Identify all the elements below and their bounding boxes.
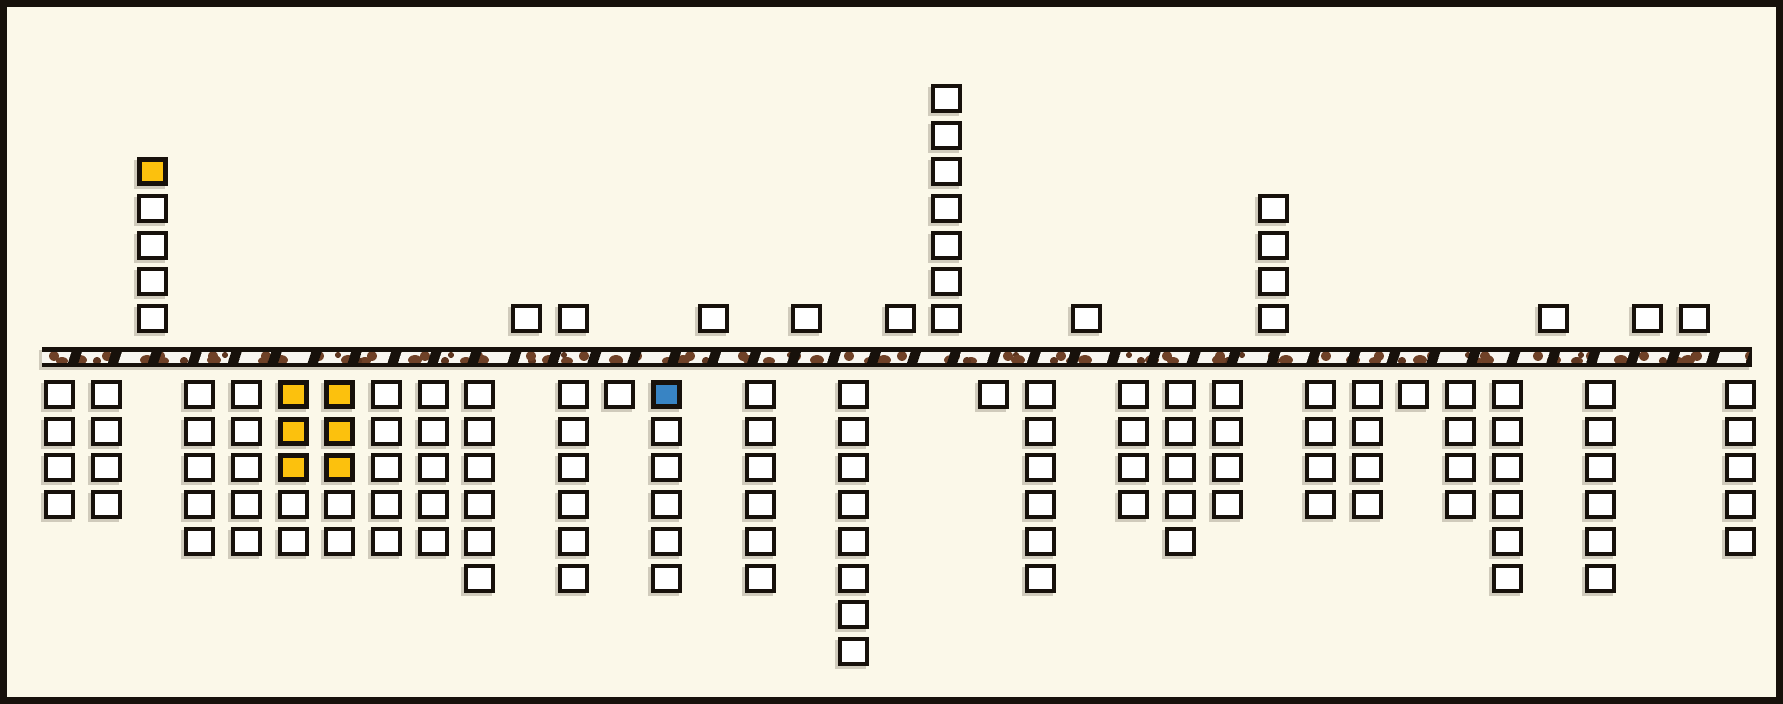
grid-cell [184,527,215,556]
grid-cell [324,453,355,482]
grid-cell [931,304,962,333]
grid-cell [418,380,449,409]
grid-cell [1258,267,1289,296]
grid-cell [464,564,495,593]
grid-cell [137,231,168,260]
grid-cell [44,453,75,482]
grid-cell [1492,527,1523,556]
grid-cell [1492,453,1523,482]
grid-cell [231,380,262,409]
simulation-canvas [0,0,1783,704]
grid-cell [698,304,729,333]
grid-cell [418,490,449,519]
grid-cell [1165,380,1196,409]
grid-cell [1398,380,1429,409]
grid-cell [1071,304,1102,333]
grid-cell [1118,380,1149,409]
grid-cell [1445,417,1476,446]
grid-cell [558,564,589,593]
grid-cell [418,453,449,482]
grid-cell [604,380,635,409]
grid-cell [931,231,962,260]
grid-cell [1025,527,1056,556]
grid-cell [1118,490,1149,519]
grid-cell [1352,380,1383,409]
grid-cell [371,490,402,519]
grid-cell [1585,380,1616,409]
grid-cell [324,380,355,409]
grid-cell [838,490,869,519]
grid-cell [1585,527,1616,556]
grid-cell [371,417,402,446]
grid-cell [464,453,495,482]
grid-cell [231,453,262,482]
grid-cell [1585,417,1616,446]
grid-cell [1445,453,1476,482]
grid-cell [1165,417,1196,446]
grid-cell [91,380,122,409]
grid-cell [44,417,75,446]
grid-cell [1352,453,1383,482]
grid-cell [1492,380,1523,409]
grid-cell [44,490,75,519]
grid-cell [931,157,962,186]
grid-cell [838,527,869,556]
grid-cell [1492,490,1523,519]
grid-cell [324,417,355,446]
grid-cell [278,490,309,519]
grid-cell [184,453,215,482]
soil-band [42,347,1752,367]
grid-cell [1258,231,1289,260]
grid-cell [91,453,122,482]
grid-cell [137,157,168,186]
grid-cell [1585,564,1616,593]
grid-cell [231,417,262,446]
grid-cell [1258,194,1289,223]
grid-cell [651,380,682,409]
grid-cell [324,490,355,519]
grid-cell [1212,417,1243,446]
grid-cell [838,453,869,482]
grid-cell [558,527,589,556]
grid-cell [137,267,168,296]
grid-cell [1258,304,1289,333]
grid-cell [1679,304,1710,333]
grid-cell [885,304,916,333]
grid-cell [324,527,355,556]
grid-cell [231,527,262,556]
grid-cell [1585,490,1616,519]
grid-cell [184,490,215,519]
grid-cell [745,490,776,519]
grid-cell [231,490,262,519]
grid-cell [1165,490,1196,519]
grid-cell [1025,564,1056,593]
grid-cell [745,453,776,482]
grid-cell [1212,453,1243,482]
grid-cell [791,304,822,333]
grid-cell [1305,417,1336,446]
grid-cell [1725,380,1756,409]
grid-cell [371,527,402,556]
grid-cell [91,490,122,519]
grid-cell [1118,417,1149,446]
grid-cell [464,380,495,409]
grid-cell [418,417,449,446]
grid-cell [371,453,402,482]
grid-cell [1305,380,1336,409]
grid-cell [651,490,682,519]
grid-cell [1165,453,1196,482]
grid-cell [1725,417,1756,446]
grid-cell [838,637,869,666]
grid-cell [184,417,215,446]
grid-cell [1725,453,1756,482]
grid-cell [838,600,869,629]
grid-cell [137,194,168,223]
grid-cell [464,527,495,556]
grid-cell [1118,453,1149,482]
grid-cell [278,527,309,556]
grid-cell [651,564,682,593]
grid-cell [1165,527,1196,556]
grid-cell [978,380,1009,409]
grid-cell [1725,527,1756,556]
grid-cell [91,417,122,446]
grid-cell [1305,453,1336,482]
grid-cell [558,380,589,409]
grid-cell [464,417,495,446]
grid-cell [511,304,542,333]
grid-cell [278,453,309,482]
grid-cell [1585,453,1616,482]
grid-cell [1212,380,1243,409]
grid-cell [558,453,589,482]
grid-cell [371,380,402,409]
grid-cell [651,527,682,556]
grid-cell [931,194,962,223]
grid-cell [1025,417,1056,446]
grid-cell [1632,304,1663,333]
grid-cell [464,490,495,519]
grid-cell [1538,304,1569,333]
grid-cell [558,304,589,333]
grid-cell [1492,564,1523,593]
grid-cell [278,380,309,409]
grid-cell [838,380,869,409]
grid-cell [931,267,962,296]
grid-cell [1305,490,1336,519]
grid-cell [651,417,682,446]
grid-cell [1352,490,1383,519]
grid-cell [838,564,869,593]
grid-cell [931,121,962,150]
grid-cell [745,527,776,556]
grid-cell [651,453,682,482]
grid-cell [1445,490,1476,519]
grid-cell [558,490,589,519]
grid-cell [1492,417,1523,446]
grid-cell [1725,490,1756,519]
grid-cell [1025,453,1056,482]
grid-cell [1025,490,1056,519]
grid-cell [418,527,449,556]
grid-cell [838,417,869,446]
grid-cell [1352,417,1383,446]
grid-cell [745,380,776,409]
grid-cell [745,417,776,446]
grid-cell [558,417,589,446]
grid-cell [137,304,168,333]
grid-cell [184,380,215,409]
grid-cell [278,417,309,446]
grid-cell [745,564,776,593]
grid-cell [1212,490,1243,519]
grid-cell [44,380,75,409]
grid-cell [1025,380,1056,409]
grid-cell [931,84,962,113]
grid-cell [1445,380,1476,409]
